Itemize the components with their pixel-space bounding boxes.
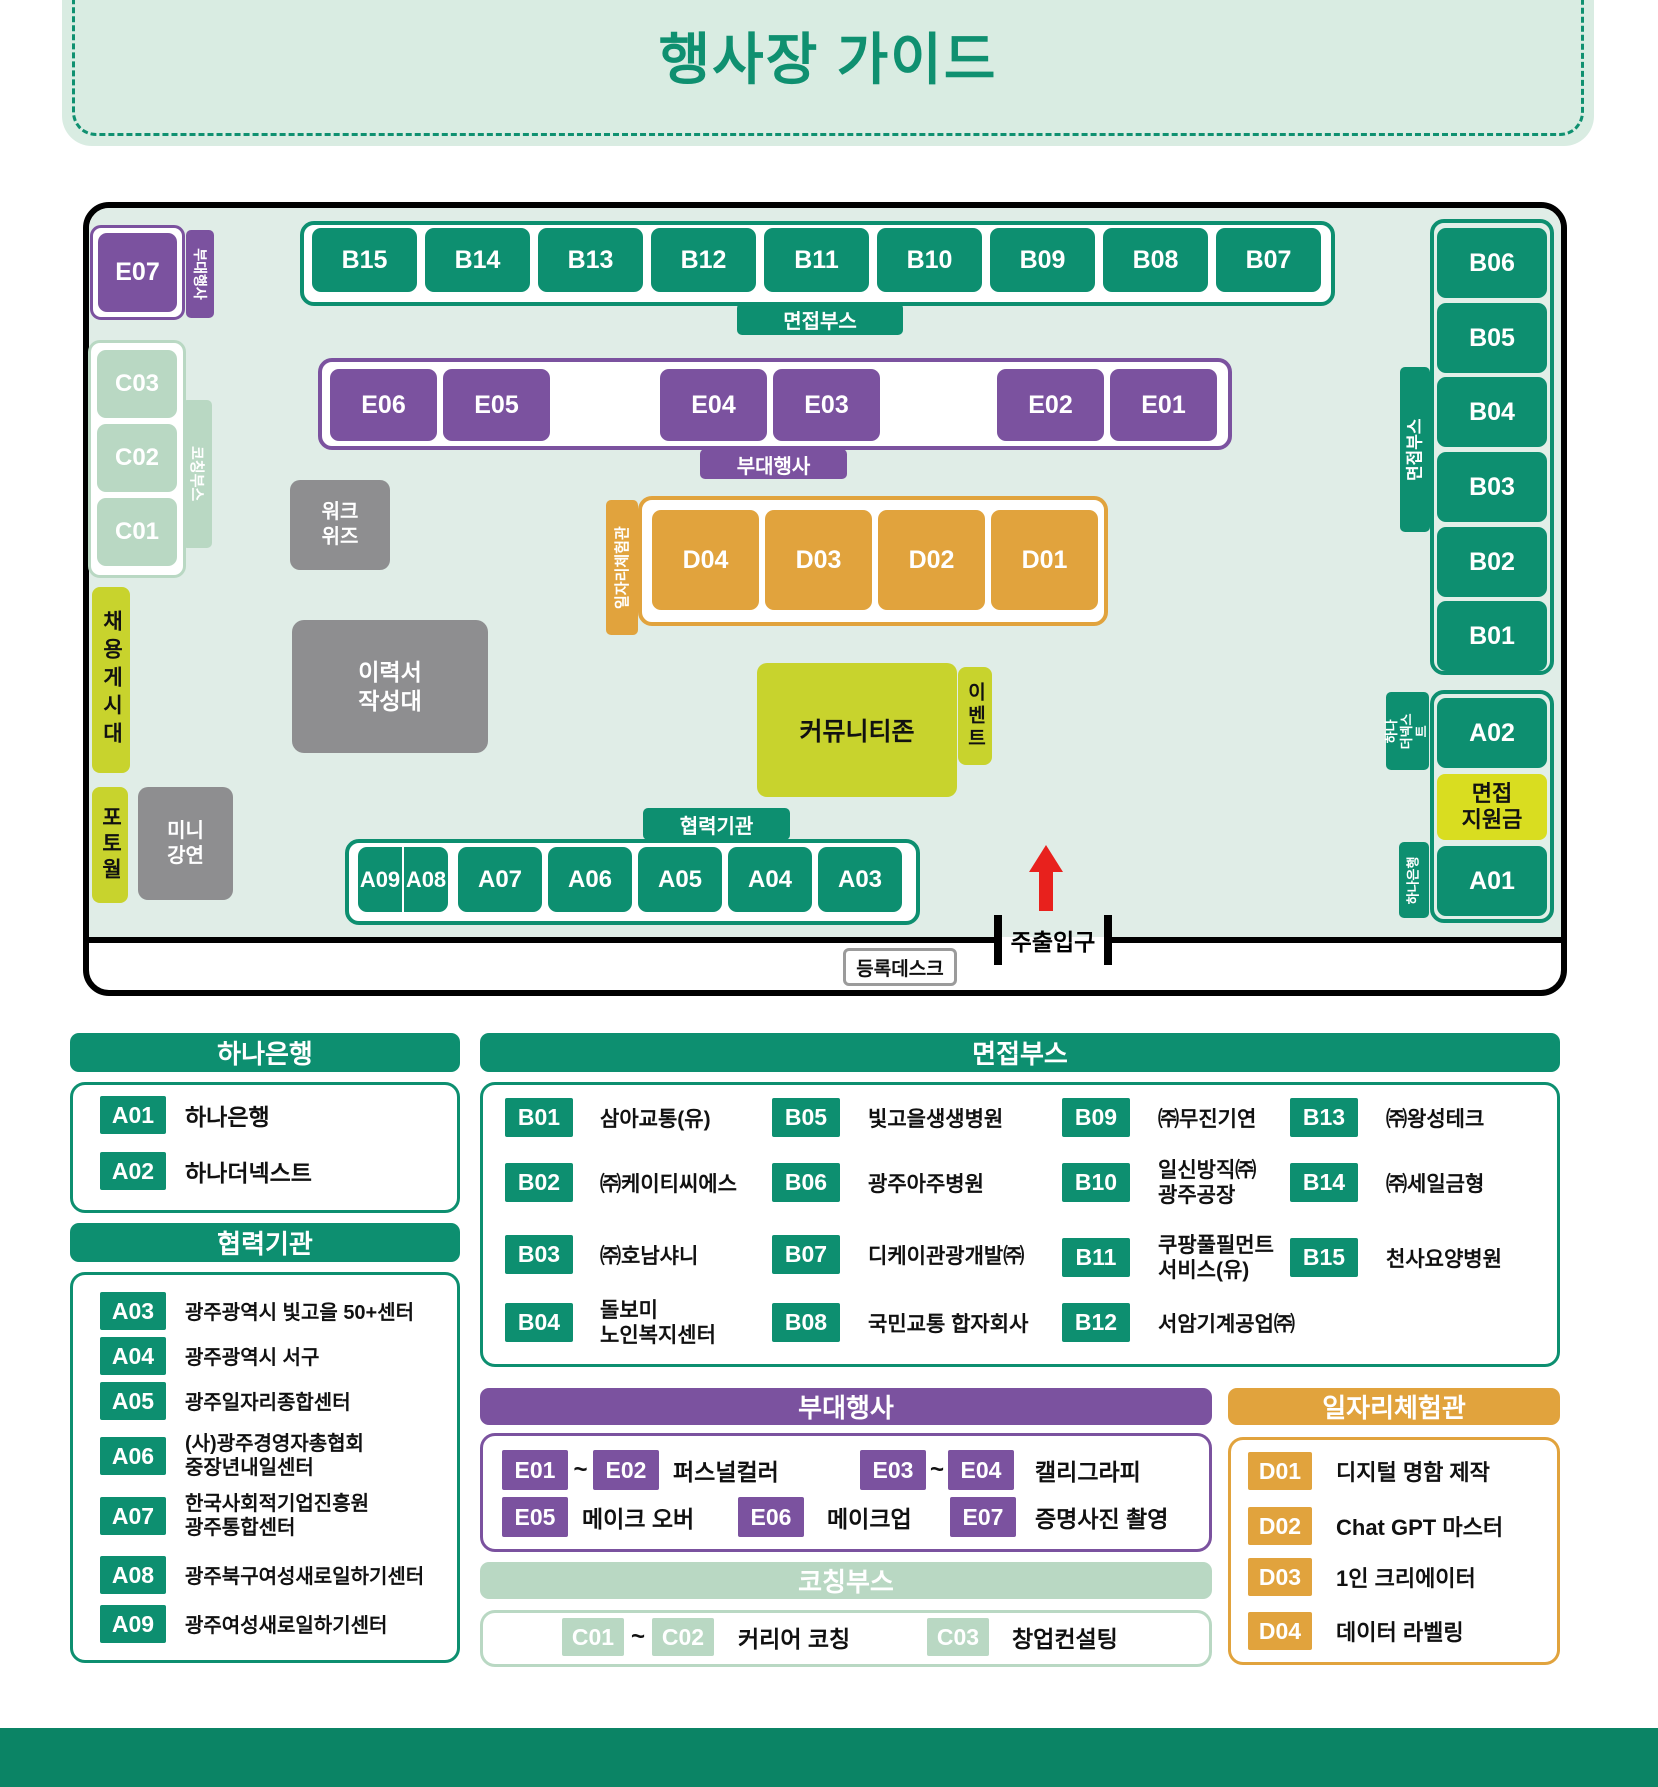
booth-b10: B10	[877, 228, 982, 292]
legend-interview-header-label: 면접부스	[972, 1034, 1068, 1071]
booth-b01: B01	[1437, 601, 1547, 671]
legend-badge-e02: E02	[593, 1450, 659, 1490]
registration-desk-label: 등록데스크	[856, 954, 943, 981]
legend-partners-header: 협력기관	[70, 1223, 460, 1262]
booth-b11: B11	[764, 228, 869, 292]
booth-c01: C01	[97, 498, 177, 566]
legend-badge-a09: A09	[100, 1605, 166, 1643]
legend-badge-b05: B05	[772, 1098, 840, 1137]
tag-partner-label: 협력기관	[680, 810, 754, 839]
tag-interview-right-label: 면접부스	[1405, 418, 1425, 481]
legend-badge-c01: C01	[562, 1618, 624, 1656]
legend-name-d01: 디지털 명함 제작	[1336, 1460, 1490, 1486]
legend-name-a07: 한국사회적기업진흥원 광주통합센터	[185, 1492, 369, 1540]
area-mini-lecture: 미니 강연	[138, 787, 233, 900]
booth-a02: A02	[1437, 698, 1547, 768]
booth-b06: B06	[1437, 228, 1547, 298]
booth-a09-a08-pair: A09 A08	[358, 847, 448, 912]
legend-tilde-e03-e04: ~	[926, 1450, 948, 1490]
legend-badge-b03: B03	[505, 1235, 573, 1274]
legend-badge-d02: D02	[1248, 1507, 1312, 1545]
legend-badge-b15: B15	[1290, 1238, 1358, 1277]
legend-name-b08: 국민교통 합자회사	[868, 1312, 1028, 1337]
booth-a03: A03	[818, 847, 902, 912]
entrance-label-text: 주출입구	[1011, 923, 1096, 957]
booth-b12: B12	[651, 228, 756, 292]
legend-name-makeup: 메이크업	[827, 1506, 912, 1534]
legend-name-id-photo: 증명사진 촬영	[1035, 1506, 1168, 1534]
legend-badge-d01: D01	[1248, 1452, 1312, 1490]
page-title: 행사장 가이드	[659, 15, 998, 96]
legend-name-career-coaching: 커리어 코칭	[738, 1626, 850, 1654]
legend-badge-b08: B08	[772, 1303, 840, 1342]
legend-badge-d04: D04	[1248, 1612, 1312, 1650]
legend-badge-b10: B10	[1062, 1163, 1130, 1202]
legend-name-b14: ㈜세일금형	[1386, 1172, 1484, 1197]
legend-badge-d03: D03	[1248, 1558, 1312, 1596]
legend-name-b02: ㈜케이티씨에스	[600, 1172, 737, 1197]
booth-a04: A04	[728, 847, 812, 912]
legend-badge-a08: A08	[100, 1556, 166, 1594]
legend-badge-a01: A01	[100, 1096, 166, 1134]
legend-name-b11: 쿠팡풀필먼트 서비스(유)	[1158, 1233, 1274, 1283]
wall-bottom-left	[89, 937, 994, 943]
tag-interview-top: 면접부스	[737, 303, 903, 335]
legend-job-exp-header: 일자리체험관	[1228, 1388, 1560, 1425]
legend-badge-e06: E06	[738, 1497, 804, 1537]
legend-name-b10: 일신방직㈜ 광주공장	[1158, 1158, 1256, 1208]
legend-badge-b09: B09	[1062, 1098, 1130, 1137]
legend-name-a01: 하나은행	[185, 1104, 270, 1132]
booth-a08: A08	[404, 847, 448, 912]
area-interview-support: 면접 지원금	[1437, 774, 1547, 840]
tag-hana-bank-label: 하나은행	[1407, 856, 1422, 904]
tag-partner: 협력기관	[643, 808, 790, 840]
legend-badge-b01: B01	[505, 1098, 573, 1137]
booth-a05: A05	[638, 847, 722, 912]
venue-guide-poster: 행사장 가이드 부대행사 E07 면접부스 B15 B14 B13 B12 B1…	[0, 0, 1658, 1787]
booth-e05: E05	[443, 369, 550, 441]
legend-badge-b04: B04	[505, 1303, 573, 1342]
legend-coaching-header: 코칭부스	[480, 1562, 1212, 1599]
area-community-zone-label: 커뮤니티존	[799, 712, 914, 748]
tag-interview-right: 면접부스	[1400, 367, 1430, 532]
booth-c03: C03	[97, 350, 177, 418]
area-job-board-label: 채용게시대	[96, 610, 126, 750]
tag-coaching: 코칭부스	[182, 400, 212, 548]
entrance-arrow-icon	[1029, 845, 1063, 911]
legend-name-b05: 빛고을생생병원	[868, 1107, 1003, 1132]
area-photo-wall: 포토월	[92, 787, 128, 903]
booth-b02: B02	[1437, 527, 1547, 597]
booth-b14: B14	[425, 228, 530, 292]
tag-coaching-label: 코칭부스	[188, 446, 205, 501]
legend-name-a06: (사)광주경영자총협회 중장년내일센터	[185, 1432, 364, 1480]
booth-a06: A06	[548, 847, 632, 912]
legend-name-personal-color: 퍼스널컬러	[673, 1459, 779, 1487]
legend-badge-e03: E03	[860, 1450, 926, 1490]
legend-name-b01: 삼아교통(유)	[600, 1107, 711, 1132]
legend-name-startup-consulting: 창업컨설팅	[1012, 1626, 1118, 1654]
legend-badge-c02: C02	[652, 1618, 714, 1656]
legend-badge-b07: B07	[772, 1235, 840, 1274]
legend-name-a04: 광주광역시 서구	[185, 1346, 319, 1370]
booth-d04: D04	[652, 510, 759, 610]
registration-desk: 등록데스크	[843, 948, 957, 986]
booth-a09: A09	[358, 847, 404, 912]
legend-hana-header-label: 하나은행	[217, 1034, 313, 1071]
legend-interview-header: 면접부스	[480, 1033, 1560, 1072]
legend-badge-b06: B06	[772, 1163, 840, 1202]
legend-coaching-header-label: 코칭부스	[798, 1562, 894, 1599]
booth-e06: E06	[330, 369, 437, 441]
legend-name-a08: 광주북구여성새로일하기센터	[185, 1565, 424, 1589]
tag-job-experience-label: 일자리체험관	[613, 526, 630, 609]
legend-name-d03: 1인 크리에이터	[1336, 1566, 1476, 1592]
booth-b08: B08	[1103, 228, 1208, 292]
legend-name-a05: 광주일자리종합센터	[185, 1391, 351, 1415]
legend-badge-e01: E01	[502, 1450, 568, 1490]
booth-e04: E04	[660, 369, 767, 441]
booth-b05: B05	[1437, 303, 1547, 373]
area-resume-desk: 이력서 작성대	[292, 620, 488, 753]
legend-badge-b14: B14	[1290, 1163, 1358, 1202]
legend-tilde-e01-e02: ~	[568, 1450, 593, 1490]
tag-side-event-row: 부대행사	[700, 449, 847, 479]
legend-badge-a07: A07	[100, 1497, 166, 1535]
tag-interview-top-label: 면접부스	[783, 305, 857, 334]
legend-badge-b02: B02	[505, 1163, 573, 1202]
legend-badge-e05: E05	[502, 1497, 568, 1537]
booth-e01: E01	[1110, 369, 1217, 441]
wall-bottom-right	[1112, 937, 1561, 943]
legend-badge-e07: E07	[950, 1497, 1016, 1537]
legend-name-b03: ㈜호남샤니	[600, 1244, 698, 1269]
legend-name-b13: ㈜왕성테크	[1386, 1107, 1484, 1132]
legend-badge-a05: A05	[100, 1382, 166, 1420]
legend-name-b06: 광주아주병원	[868, 1172, 984, 1197]
area-photo-wall-label: 포토월	[95, 806, 125, 884]
booth-b03: B03	[1437, 452, 1547, 522]
legend-side-events-header: 부대행사	[480, 1388, 1212, 1425]
legend-name-makeover: 메이크 오버	[582, 1506, 694, 1534]
booth-a07: A07	[458, 847, 542, 912]
legend-partners-header-label: 협력기관	[217, 1224, 313, 1261]
tag-side-event-row-label: 부대행사	[737, 450, 811, 479]
legend-side-events-header-label: 부대행사	[798, 1388, 894, 1425]
tag-side-event-e07-label: 부대행사	[192, 248, 208, 300]
legend-name-d02: Chat GPT 마스터	[1336, 1515, 1503, 1541]
entrance-bar-right	[1104, 915, 1112, 965]
legend-badge-a03: A03	[100, 1292, 166, 1330]
booth-d02: D02	[878, 510, 985, 610]
legend-job-exp-header-label: 일자리체험관	[1322, 1388, 1466, 1425]
legend-badge-c03: C03	[927, 1618, 989, 1656]
legend-badge-a02: A02	[100, 1152, 166, 1190]
booth-b09: B09	[990, 228, 1095, 292]
area-event-label: 이벤트	[962, 682, 989, 751]
legend-badge-a06: A06	[100, 1437, 166, 1475]
legend-name-b15: 천사요양병원	[1386, 1247, 1502, 1272]
booth-a01: A01	[1437, 846, 1547, 916]
booth-e02: E02	[997, 369, 1104, 441]
booth-b04: B04	[1437, 377, 1547, 447]
area-job-board: 채용게시대	[92, 587, 130, 773]
legend-badge-a04: A04	[100, 1337, 166, 1375]
legend-name-b04: 돌보미 노인복지센터	[600, 1298, 716, 1348]
booth-b13: B13	[538, 228, 643, 292]
legend-name-b09: ㈜무진기연	[1158, 1107, 1256, 1132]
legend-name-a03: 광주광역시 빛고을 50+센터	[185, 1301, 414, 1325]
entrance-bar-left	[994, 915, 1002, 965]
legend-name-a02: 하나더넥스트	[185, 1160, 312, 1188]
booth-d03: D03	[765, 510, 872, 610]
legend-tilde-c01-c02: ~	[624, 1618, 652, 1656]
booth-e03: E03	[773, 369, 880, 441]
area-event: 이벤트	[958, 667, 992, 765]
legend-name-b12: 서암기계공업㈜	[1158, 1312, 1295, 1337]
legend-badge-e04: E04	[948, 1450, 1014, 1490]
tag-job-experience: 일자리체험관	[606, 500, 638, 635]
tag-hana-the-next: 하나 더넥스트	[1386, 692, 1429, 770]
booth-b15: B15	[312, 228, 417, 292]
tag-hana-the-next-label: 하나 더넥스트	[1385, 710, 1430, 753]
booth-d01: D01	[991, 510, 1098, 610]
legend-badge-b12: B12	[1062, 1303, 1130, 1342]
area-community-zone: 커뮤니티존	[757, 663, 957, 797]
legend-badge-b13: B13	[1290, 1098, 1358, 1137]
legend-name-d04: 데이터 라벨링	[1336, 1620, 1464, 1646]
entrance-label: 주출입구	[1002, 920, 1104, 960]
area-workwiz: 워크 위즈	[290, 480, 390, 570]
legend-badge-b11: B11	[1062, 1238, 1130, 1277]
footer-bar	[0, 1728, 1658, 1787]
legend-name-a09: 광주여성새로일하기센터	[185, 1614, 387, 1638]
legend-name-calligraphy: 캘리그라피	[1035, 1459, 1141, 1487]
tag-side-event-e07: 부대행사	[186, 230, 214, 318]
legend-name-b07: 디케이관광개발㈜	[868, 1244, 1024, 1269]
booth-b07: B07	[1216, 228, 1321, 292]
tag-hana-bank: 하나은행	[1399, 842, 1429, 918]
booth-c02: C02	[97, 424, 177, 492]
booth-e07: E07	[98, 233, 177, 312]
legend-hana-header: 하나은행	[70, 1033, 460, 1072]
title-banner: 행사장 가이드	[62, 0, 1594, 146]
